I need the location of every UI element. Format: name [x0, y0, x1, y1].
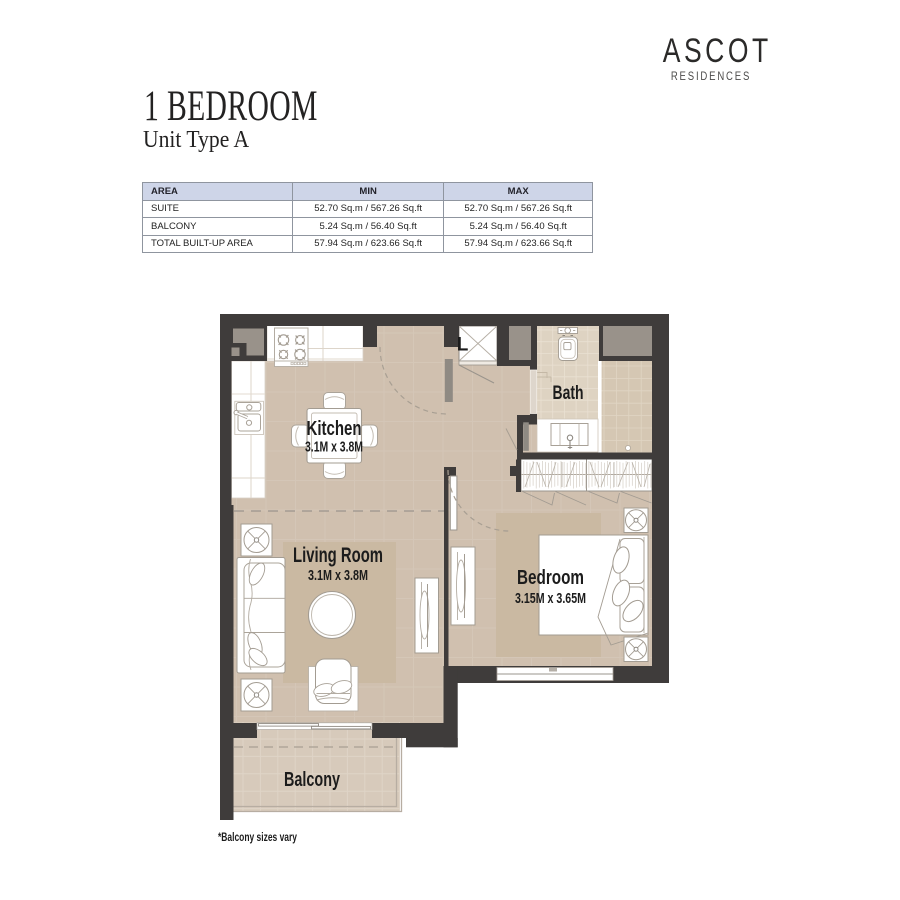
svg-text:Bedroom: Bedroom: [517, 567, 584, 589]
svg-text:3.1M x 3.8M: 3.1M x 3.8M: [305, 440, 363, 456]
svg-text:L: L: [457, 335, 469, 356]
svg-text:Bath: Bath: [553, 383, 584, 404]
svg-text:3.1M x 3.8M: 3.1M x 3.8M: [308, 568, 368, 584]
svg-text:3.15M x 3.65M: 3.15M x 3.65M: [515, 591, 586, 607]
svg-text:Kitchen: Kitchen: [307, 418, 362, 440]
svg-text:*Balcony sizes vary: *Balcony sizes vary: [218, 832, 297, 844]
svg-text:Balcony: Balcony: [284, 769, 341, 791]
svg-text:Living Room: Living Room: [293, 544, 383, 567]
